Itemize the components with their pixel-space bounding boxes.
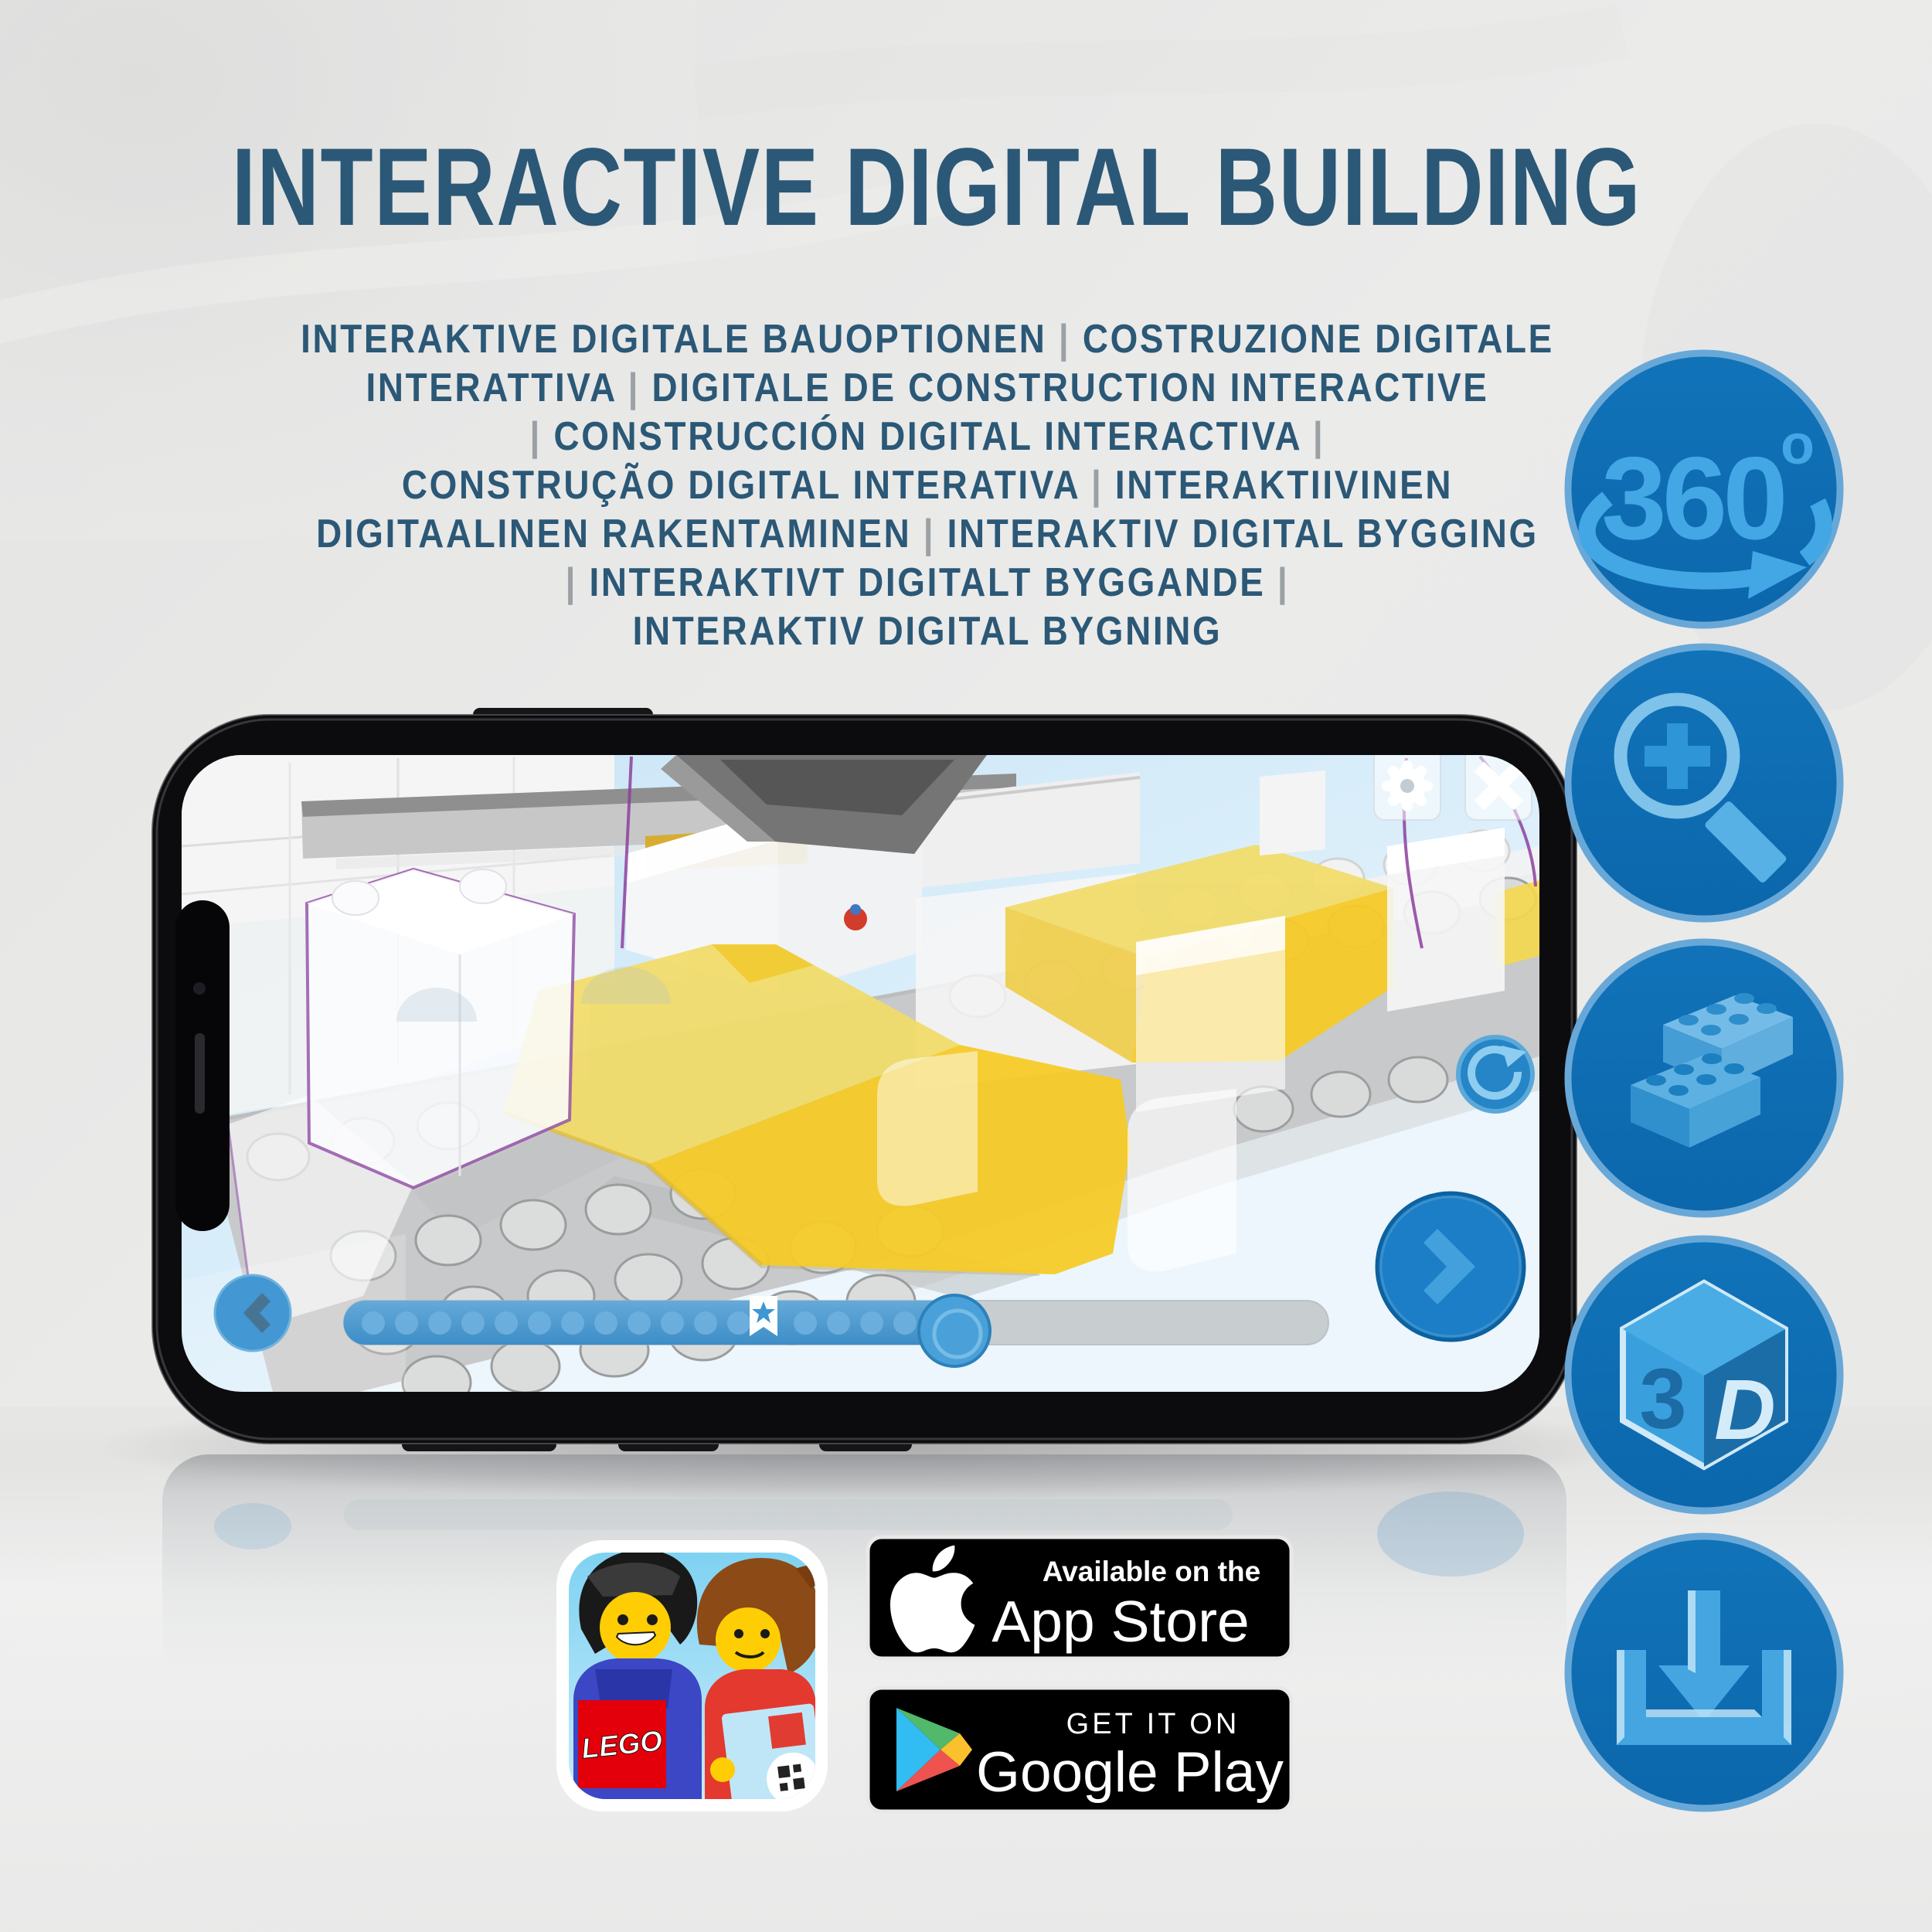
svg-text:Google Play: Google Play [976,1741,1284,1804]
svg-text:App Store: App Store [992,1589,1250,1654]
svg-text:3: 3 [1639,1352,1686,1447]
svg-text:D: D [1714,1362,1775,1458]
svg-text:Available on the: Available on the [1043,1556,1260,1587]
svg-text:o: o [1781,414,1815,476]
svg-text:GET IT ON: GET IT ON [1066,1708,1240,1740]
